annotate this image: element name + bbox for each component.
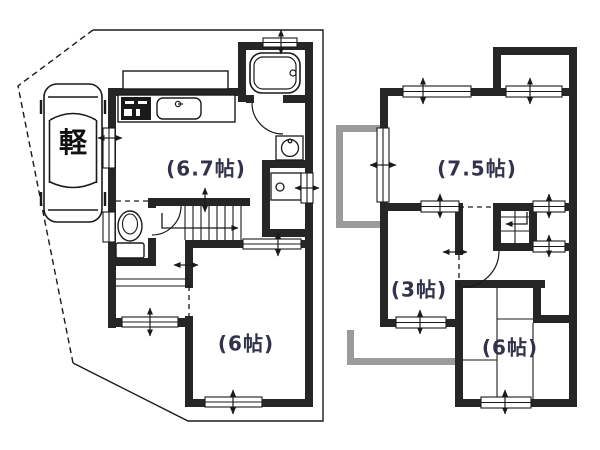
toilet-door-arc xyxy=(152,206,181,235)
room-label-bedroom-a-2f: (7.5帖) xyxy=(437,153,517,182)
room-bedroom-a-2f xyxy=(388,96,569,203)
washroom-door-arc xyxy=(252,103,283,134)
kitchen-unit xyxy=(118,95,235,122)
toilet-icon xyxy=(116,211,144,258)
balcony-lower xyxy=(351,330,461,362)
room-b-2f xyxy=(388,211,455,319)
window-icon xyxy=(243,239,301,249)
room-label-room-b-2f: (3帖) xyxy=(391,274,447,303)
floorplan-canvas: 軽 (6.7帖) (6帖) (7.5帖) (3帖) (6帖) xyxy=(0,0,600,450)
washbasin-icon xyxy=(276,136,303,160)
stairs-first-floor xyxy=(162,206,241,240)
room-label-bedroom-1f: (6帖) xyxy=(218,328,274,357)
floor2-walls xyxy=(380,47,577,407)
window-icon xyxy=(263,38,297,47)
window-icon xyxy=(481,397,531,408)
room-label-bedroom-c-2f: (6帖) xyxy=(482,332,538,361)
window-icon xyxy=(396,317,446,328)
closet-2f xyxy=(541,287,569,315)
stove-icon xyxy=(121,97,151,120)
floorplan-svg xyxy=(0,0,600,450)
entrance-step-lines xyxy=(116,279,189,286)
bathtub-icon xyxy=(250,53,300,93)
parking-label: 軽 xyxy=(59,121,87,161)
kitchen-counter xyxy=(123,71,228,89)
room-bedroom-1f xyxy=(193,248,305,399)
room-label-ldk: (6.7帖) xyxy=(166,153,246,182)
window-icon xyxy=(103,212,115,242)
stairs-second-floor xyxy=(501,211,529,243)
window-icon xyxy=(103,128,115,168)
window-icon xyxy=(403,86,471,97)
dashed-openings-2f xyxy=(459,207,493,287)
laundry-icon xyxy=(271,173,301,200)
window-icon xyxy=(506,86,562,97)
